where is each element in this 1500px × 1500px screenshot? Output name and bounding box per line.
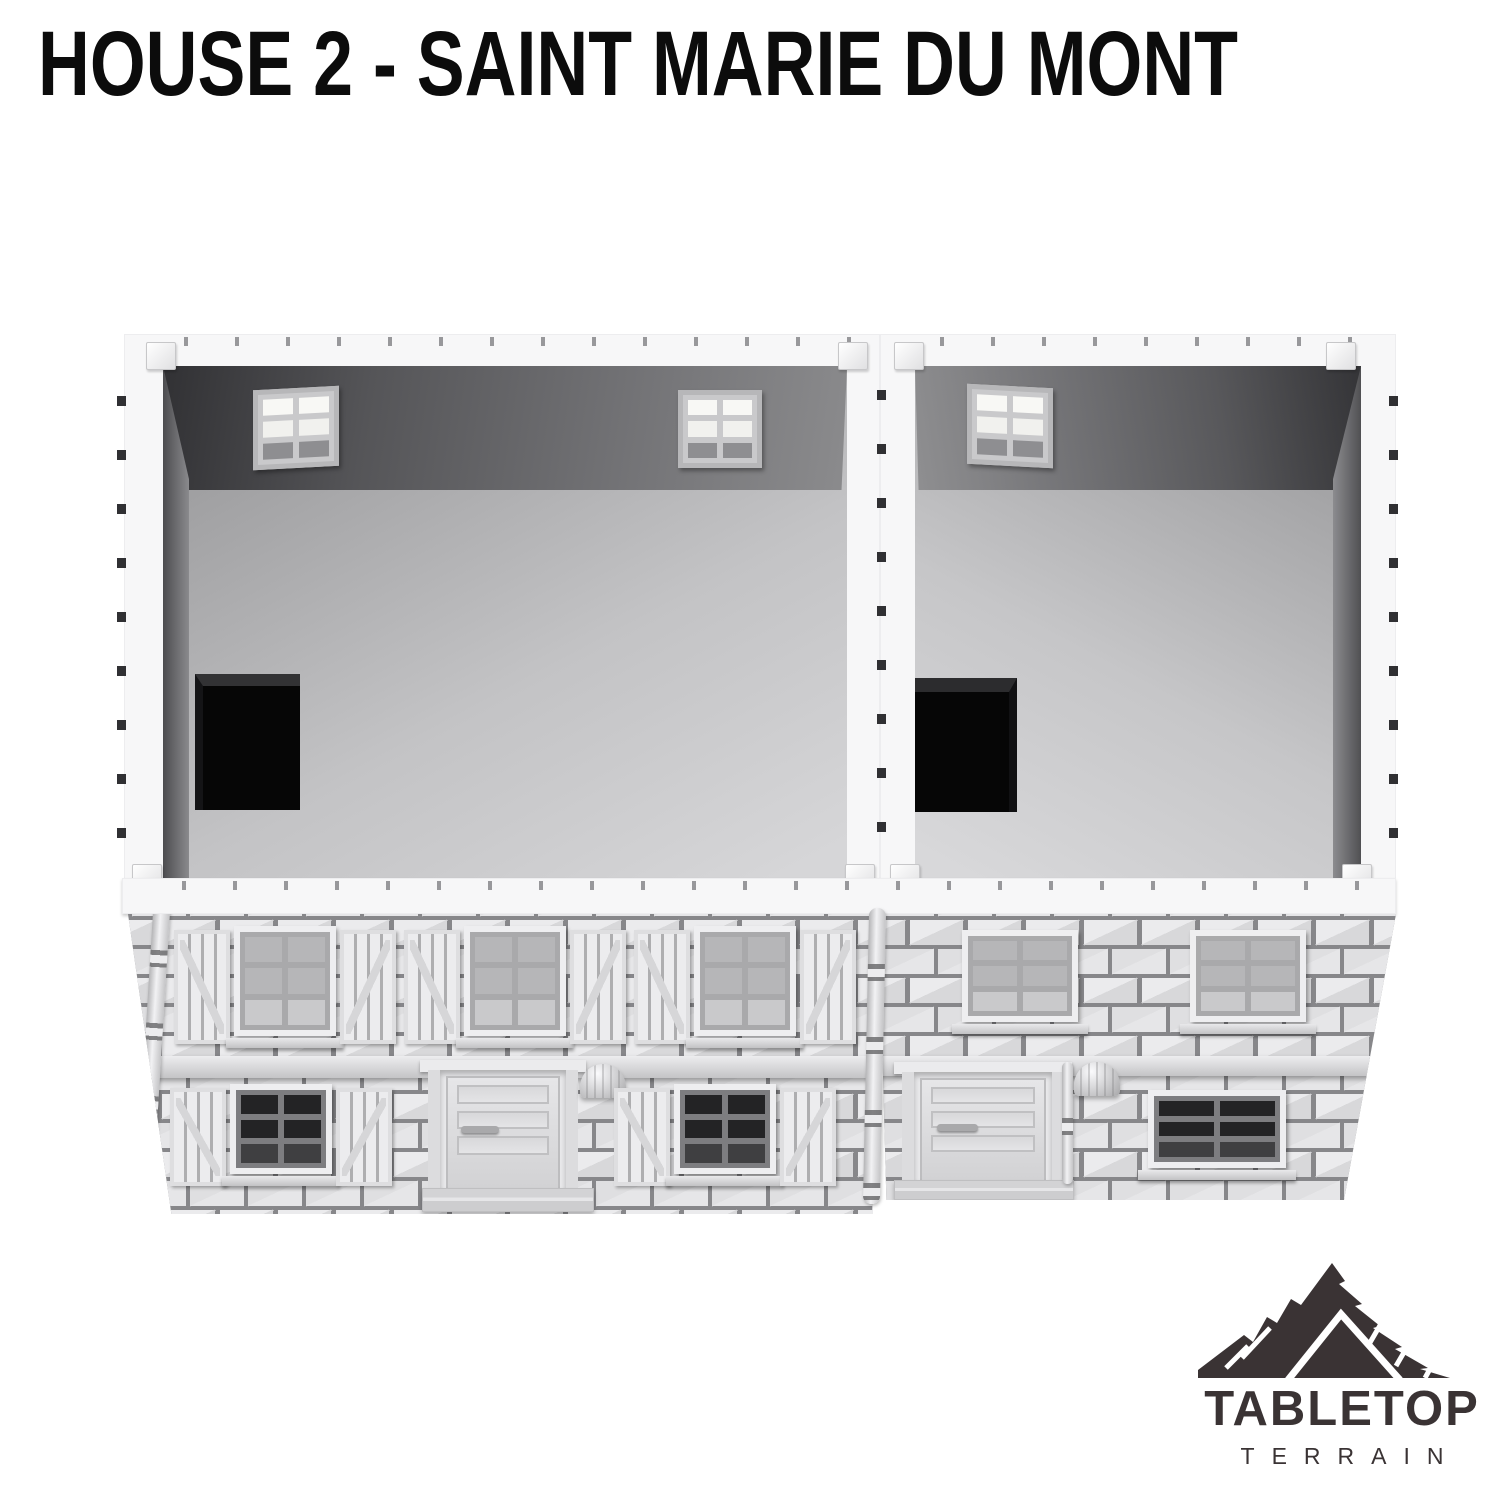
- window-pane: [728, 1144, 765, 1163]
- window-pane: [1013, 396, 1043, 414]
- corner-peg: [146, 342, 176, 370]
- window-pane: [1251, 966, 1295, 985]
- door-frame: [428, 1070, 578, 1190]
- corner-peg: [894, 342, 924, 370]
- door-steps: [894, 1180, 1074, 1200]
- wall-top-ticks: [893, 337, 1383, 346]
- window-pane: [973, 966, 1017, 985]
- window-sill: [226, 1038, 344, 1048]
- window-pane: [748, 968, 785, 993]
- window-pane: [685, 1144, 722, 1163]
- window-pane: [723, 443, 752, 458]
- window-pane: [1023, 966, 1067, 985]
- window-shutter: [336, 1088, 392, 1186]
- window-pane: [1220, 1142, 1275, 1157]
- door-panel: [931, 1135, 1035, 1152]
- window-pane: [288, 968, 325, 993]
- window-shutter: [340, 930, 396, 1044]
- product-image-page: HOUSE 2 - SAINT MARIE DU MONT: [0, 0, 1500, 1500]
- shuttered-window-assembly: [634, 926, 856, 1052]
- facade-window: [464, 926, 566, 1036]
- mountain-logo-icon: [1192, 1256, 1492, 1384]
- corner-peg: [838, 342, 868, 370]
- window-pane: [1013, 418, 1043, 436]
- openlock-clip-slots: [117, 352, 126, 872]
- window-pane: [1013, 440, 1043, 458]
- window-shutter: [570, 930, 626, 1044]
- left-unit-stone-facade: [128, 914, 876, 1214]
- window-pane: [475, 1000, 512, 1025]
- window-shutter: [174, 930, 230, 1044]
- window-pane: [284, 1095, 321, 1114]
- page-title: HOUSE 2 - SAINT MARIE DU MONT: [38, 16, 1238, 113]
- window-pane: [705, 1000, 742, 1025]
- door-steps: [422, 1188, 594, 1212]
- shuttered-window-assembly: [174, 926, 396, 1052]
- window-pane: [688, 421, 717, 436]
- window-pane: [977, 416, 1007, 434]
- shuttered-window-assembly: [170, 1084, 392, 1190]
- window-pane: [1220, 1101, 1275, 1116]
- window-pane: [263, 420, 293, 438]
- window-pane: [723, 421, 752, 436]
- door-handle: [937, 1124, 978, 1131]
- shuttered-window-assembly: [614, 1084, 836, 1190]
- section-seam-clips: [877, 346, 886, 876]
- window-shutter: [800, 930, 856, 1044]
- door-panel: [457, 1085, 549, 1104]
- window-pane: [245, 937, 282, 962]
- window-pane: [705, 968, 742, 993]
- facade-window: [694, 926, 796, 1036]
- window-pane: [1159, 1101, 1214, 1116]
- window-shutter: [614, 1088, 670, 1186]
- window-shutter: [170, 1088, 226, 1186]
- window-sill: [666, 1176, 784, 1186]
- openlock-clip-slots: [1389, 352, 1398, 872]
- window-pane: [299, 440, 329, 458]
- lamp-pipe: [1062, 1062, 1073, 1184]
- window-pane: [263, 442, 293, 460]
- door-leaf: [446, 1076, 560, 1190]
- window-pane: [1251, 941, 1295, 960]
- window-sill: [686, 1038, 804, 1048]
- window-pane: [284, 1120, 321, 1139]
- window-pane: [284, 1144, 321, 1163]
- window-pane: [263, 398, 293, 416]
- corner-peg: [1326, 342, 1356, 370]
- window-pane: [518, 968, 555, 993]
- entry-door: [428, 1060, 578, 1190]
- facade-window: [230, 1084, 332, 1174]
- facade-window: [1190, 930, 1306, 1022]
- left-unit-interior-room: [163, 366, 847, 880]
- window-pane: [1159, 1122, 1214, 1137]
- wall-top-ticks: [137, 337, 867, 346]
- facade-window: [234, 926, 336, 1036]
- window-pane: [245, 1000, 282, 1025]
- window-sill: [222, 1176, 340, 1186]
- window-sill: [1138, 1170, 1296, 1180]
- window-pane: [518, 1000, 555, 1025]
- door-panel: [931, 1087, 1035, 1104]
- window-pane: [977, 438, 1007, 456]
- window-pane: [723, 400, 752, 415]
- entry-door: [902, 1062, 1064, 1182]
- window-pane: [688, 400, 717, 415]
- window-pane: [288, 1000, 325, 1025]
- window-pane: [1220, 1122, 1275, 1137]
- floor-hatch-opening: [915, 678, 1017, 812]
- window-sill: [952, 1024, 1088, 1034]
- window-pane: [977, 394, 1007, 412]
- window-pane: [973, 941, 1017, 960]
- floor-hatch-opening: [195, 674, 300, 810]
- window-pane: [1201, 966, 1245, 985]
- window-pane: [705, 937, 742, 962]
- window-pane: [685, 1120, 722, 1139]
- door-handle: [461, 1126, 498, 1133]
- facade-window: [674, 1084, 776, 1174]
- window-pane: [241, 1120, 278, 1139]
- window-pane: [685, 1095, 722, 1114]
- window-pane: [973, 992, 1017, 1011]
- right-unit-stone-facade: [876, 914, 1396, 1200]
- window-pane: [288, 937, 325, 962]
- window-pane: [748, 937, 785, 962]
- window-pane: [1251, 992, 1295, 1011]
- window-pane: [299, 418, 329, 436]
- window-shutter: [404, 930, 460, 1044]
- window-pane: [475, 968, 512, 993]
- door-panel: [457, 1136, 549, 1155]
- window-pane: [1023, 992, 1067, 1011]
- interior-window: [967, 384, 1053, 469]
- window-pane: [1159, 1142, 1214, 1157]
- window-pane: [728, 1120, 765, 1139]
- window-pane: [688, 443, 717, 458]
- window-pane: [245, 968, 282, 993]
- window-pane: [1023, 941, 1067, 960]
- shuttered-window-assembly: [404, 926, 626, 1052]
- logo-secondary-text: TERRAIN: [1192, 1443, 1492, 1470]
- window-pane: [1201, 992, 1245, 1011]
- window-pane: [475, 937, 512, 962]
- window-pane: [728, 1095, 765, 1114]
- window-sill: [456, 1038, 574, 1048]
- door-leaf: [920, 1078, 1046, 1182]
- facade-window: [962, 930, 1078, 1022]
- front-wall-top-band: [122, 878, 1396, 914]
- window-shutter: [634, 930, 690, 1044]
- window-pane: [1201, 941, 1245, 960]
- window-pane: [241, 1144, 278, 1163]
- interior-window: [678, 390, 762, 468]
- interior-window: [253, 386, 339, 471]
- window-pane: [748, 1000, 785, 1025]
- window-pane: [241, 1095, 278, 1114]
- window-pane: [299, 396, 329, 414]
- brand-logo: TABLETOP TERRAIN: [1192, 1256, 1492, 1470]
- window-shutter: [780, 1088, 836, 1186]
- logo-primary-text: TABLETOP: [1192, 1385, 1492, 1434]
- window-pane: [518, 937, 555, 962]
- right-unit-interior-room: [915, 366, 1361, 880]
- facade-window: [1148, 1090, 1286, 1168]
- wall-top-ticks: [135, 881, 1383, 890]
- door-frame: [902, 1072, 1064, 1182]
- window-sill: [1180, 1024, 1316, 1034]
